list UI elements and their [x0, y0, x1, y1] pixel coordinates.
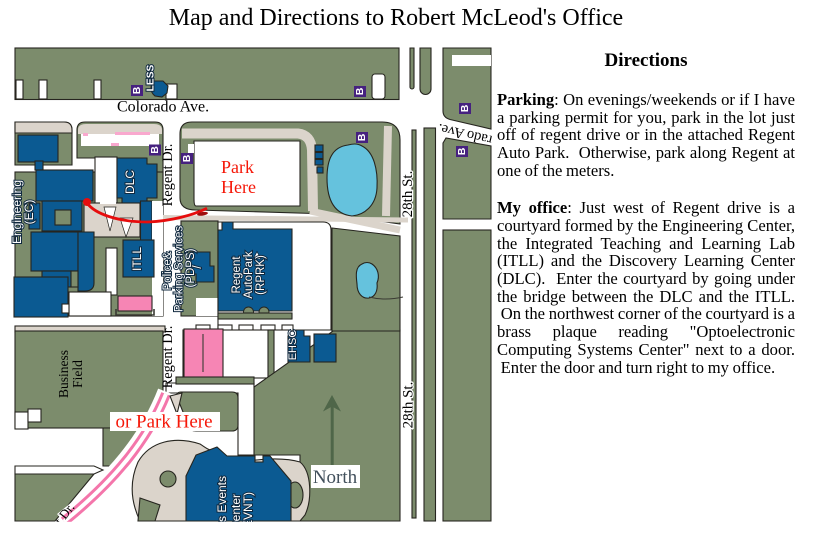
svg-text:ITLL: ITLL — [130, 247, 144, 271]
svg-text:Regent: Regent — [231, 256, 243, 294]
svg-text:Colorado Ave.: Colorado Ave. — [117, 99, 209, 116]
svg-text:DLC: DLC — [123, 170, 137, 194]
svg-text:or Park Here: or Park Here — [115, 412, 212, 433]
svg-text:B: B — [456, 147, 468, 155]
svg-text:B: B — [354, 87, 366, 95]
svg-text:Field: Field — [70, 360, 85, 388]
svg-text:Regent Dr.: Regent Dr. — [160, 326, 176, 389]
svg-text:(RPRK): (RPRK) — [255, 255, 267, 295]
svg-text:Here: Here — [221, 177, 256, 197]
svg-text:28th St.: 28th St. — [400, 171, 416, 218]
svg-text:28th St.: 28th St. — [401, 382, 417, 429]
svg-text:Business: Business — [56, 350, 71, 398]
svg-text:B: B — [459, 104, 471, 112]
svg-text:EHSC: EHSC — [287, 330, 299, 361]
svg-text:Regent Dr.: Regent Dr. — [160, 144, 176, 207]
svg-text:Park: Park — [221, 157, 254, 177]
svg-text:B: B — [356, 133, 368, 141]
svg-text:Police&: Police& — [162, 251, 174, 290]
svg-text:North: North — [313, 467, 358, 488]
svg-text:AutoPark: AutoPark — [243, 251, 255, 299]
svg-text:B: B — [131, 86, 143, 94]
svg-text:(EC): (EC) — [22, 200, 36, 225]
svg-text:LESS: LESS — [146, 64, 157, 91]
svg-text:Parking Services: Parking Services — [174, 226, 186, 313]
svg-text:B: B — [181, 154, 193, 162]
